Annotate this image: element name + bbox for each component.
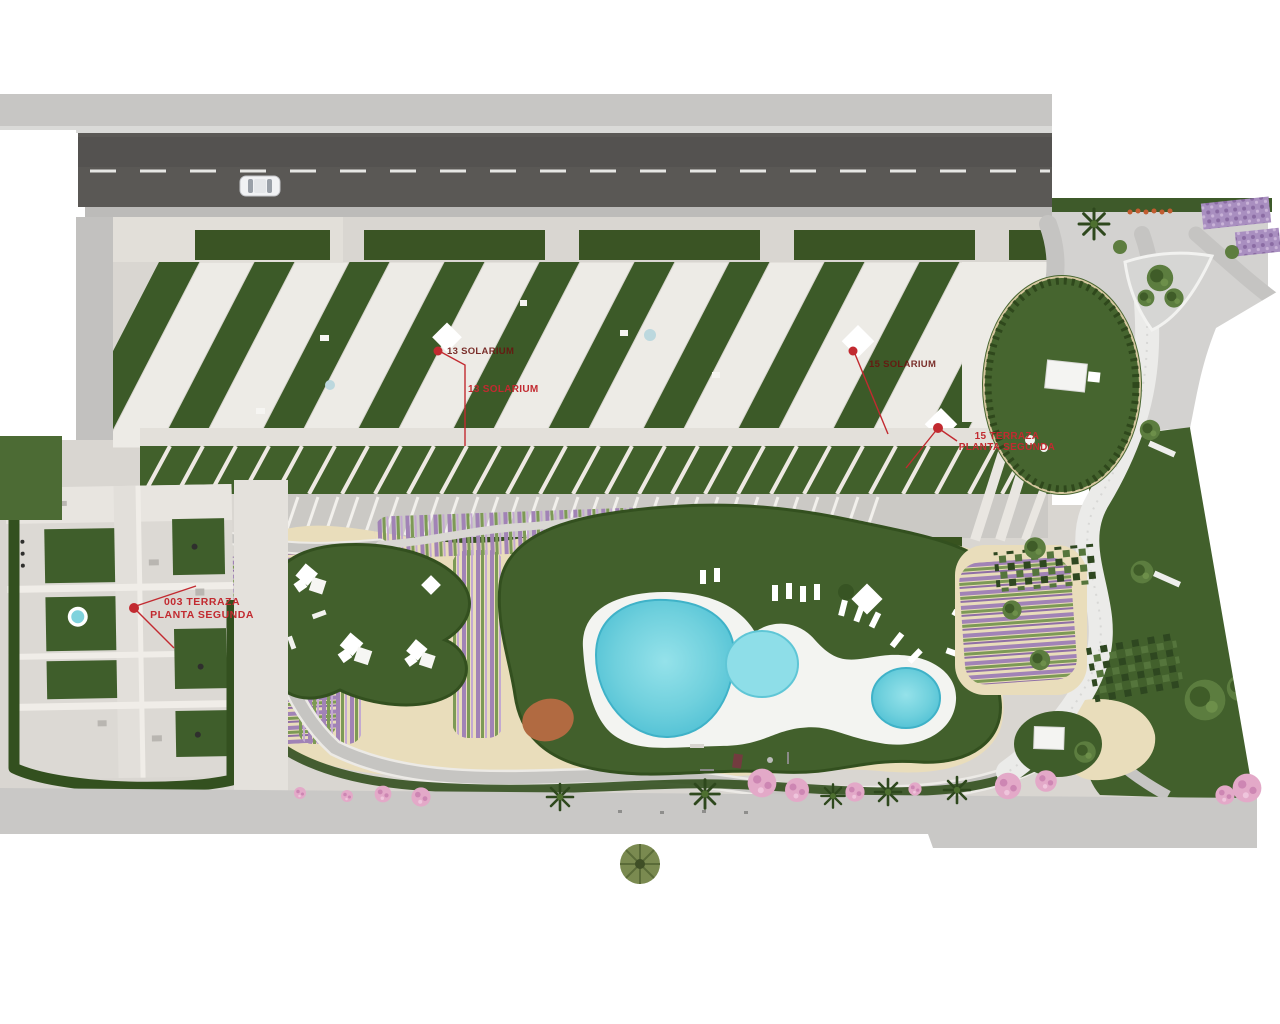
flower-bed bbox=[1235, 228, 1280, 256]
label-terraza-003: 003 TERRAZA PLANTA SEGUNDA bbox=[146, 596, 258, 622]
circular-lawn bbox=[982, 275, 1142, 495]
left-margin bbox=[0, 130, 76, 438]
island-shrub bbox=[838, 584, 854, 600]
top-street bbox=[0, 94, 1052, 217]
label-terraza-15-line2: PLANTA SEGUNDA bbox=[954, 442, 1060, 453]
corner-lawn bbox=[0, 436, 62, 520]
pool-island bbox=[499, 505, 1002, 774]
site-plan-svg bbox=[0, 0, 1280, 1024]
label-terraza-003-line2: PLANTA SEGUNDA bbox=[146, 609, 258, 622]
bottom-right-lawn bbox=[1014, 711, 1102, 777]
left-building-block bbox=[6, 484, 237, 780]
lone-tree bbox=[620, 844, 660, 884]
label-terraza-15-line1: 15 TERRAZA bbox=[954, 431, 1060, 442]
car-top-view-icon bbox=[240, 176, 280, 196]
label-solarium-13-tag: 13 SOLARIUM bbox=[447, 346, 514, 357]
pool-small bbox=[872, 668, 940, 728]
pavilion bbox=[1034, 726, 1065, 749]
left-plaza-path bbox=[234, 480, 288, 798]
red-marker-dot-icon bbox=[434, 347, 443, 356]
red-marker-dot-icon bbox=[849, 347, 858, 356]
street-hedge-row bbox=[195, 230, 1050, 260]
label-solarium-13: 13 SOLARIUM bbox=[468, 384, 539, 395]
site-plan: 13 SOLARIUM 13 SOLARIUM 15 SOLARIUM 15 T… bbox=[0, 0, 1280, 1024]
terrace-walkway bbox=[140, 428, 1050, 446]
label-terraza-15: 15 TERRAZA PLANTA SEGUNDA bbox=[954, 431, 1060, 453]
pool-mid bbox=[726, 631, 798, 697]
label-solarium-15-tag: 15 SOLARIUM bbox=[869, 359, 936, 370]
label-terraza-003-line1: 003 TERRAZA bbox=[146, 596, 258, 609]
play-island bbox=[265, 544, 470, 704]
palm-tree-icon bbox=[1079, 209, 1109, 239]
